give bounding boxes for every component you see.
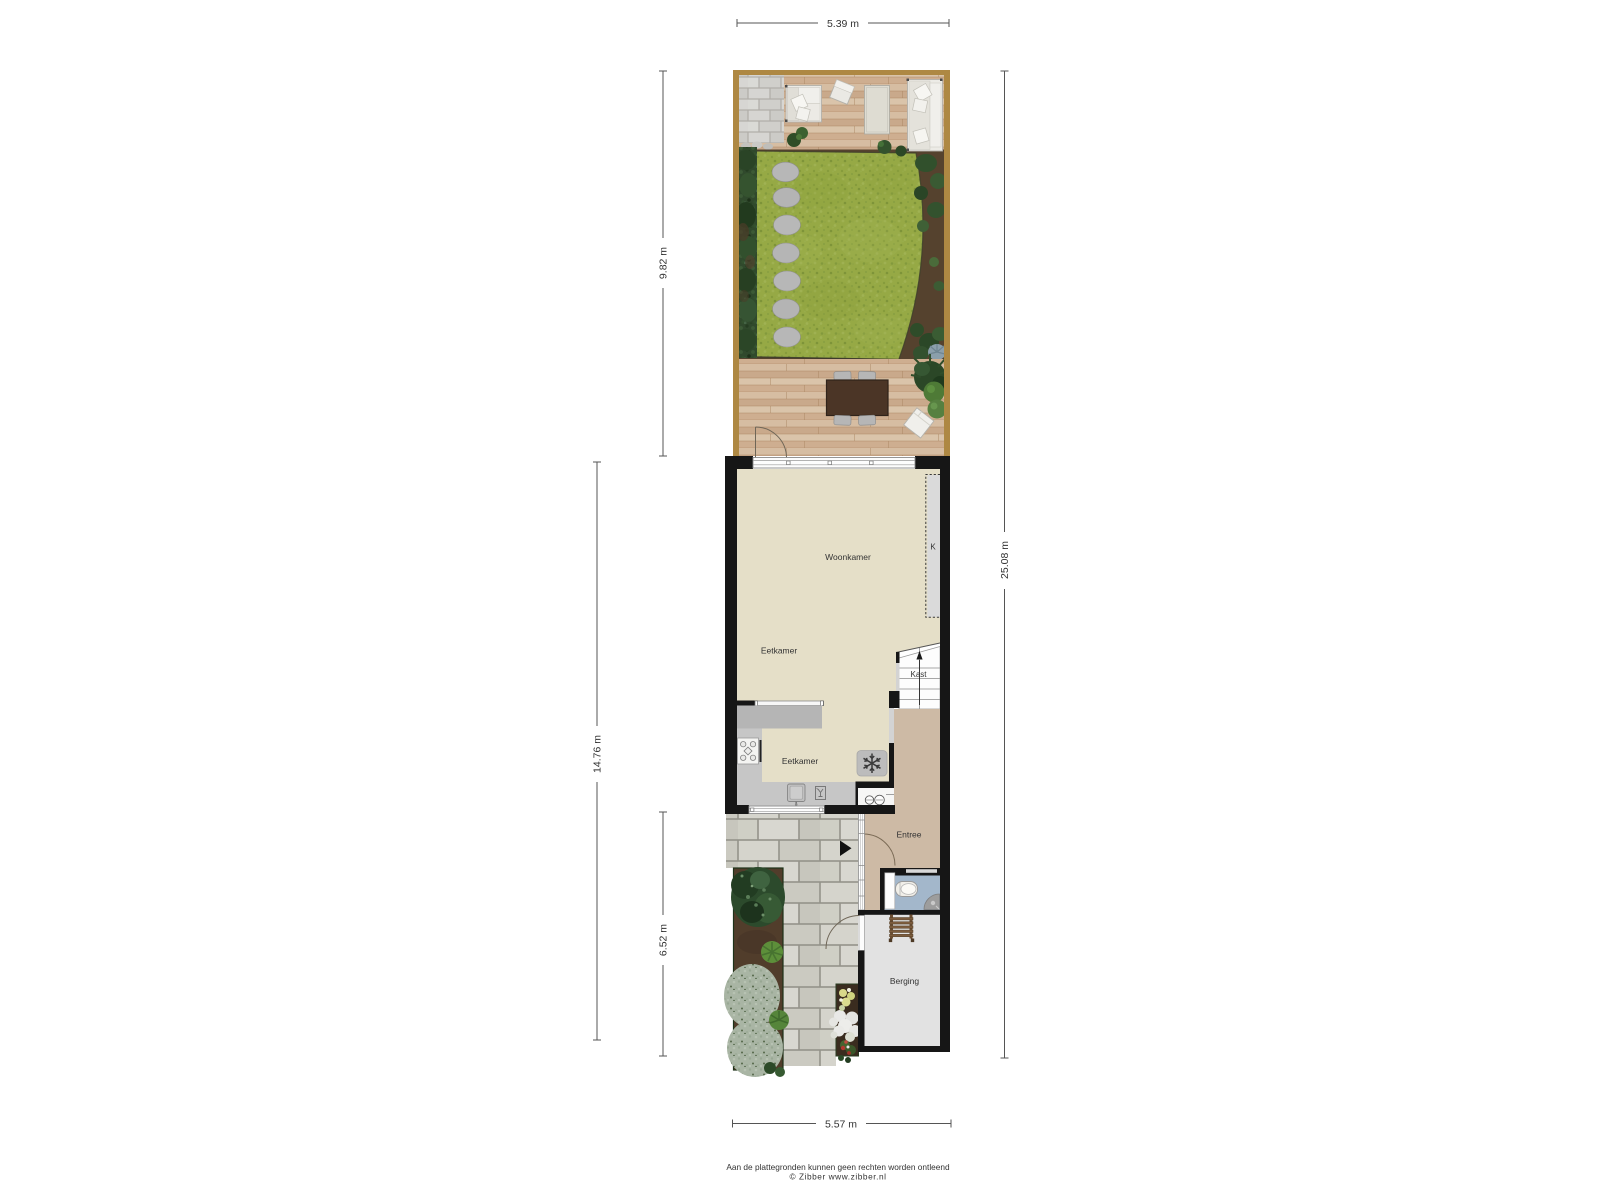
svg-text:Kast: Kast	[910, 670, 927, 679]
svg-text:Aan de plattegronden kunnen ge: Aan de plattegronden kunnen geen rechten…	[726, 1162, 950, 1172]
svg-text:Berging: Berging	[890, 976, 920, 986]
svg-text:Eetkamer: Eetkamer	[761, 646, 798, 656]
svg-text:5.57 m: 5.57 m	[825, 1119, 857, 1131]
svg-text:14.76 m: 14.76 m	[592, 735, 604, 773]
svg-text:Eetkamer: Eetkamer	[782, 756, 819, 766]
svg-text:Entree: Entree	[896, 830, 921, 840]
svg-text:9.82 m: 9.82 m	[658, 247, 670, 279]
svg-text:25.08 m: 25.08 m	[999, 541, 1011, 579]
svg-text:© Zibber www.zibber.nl: © Zibber www.zibber.nl	[789, 1172, 886, 1182]
svg-text:5.39 m: 5.39 m	[827, 18, 859, 30]
svg-text:Woonkamer: Woonkamer	[825, 552, 871, 562]
svg-text:6.52 m: 6.52 m	[658, 924, 670, 956]
svg-text:K: K	[930, 543, 936, 552]
